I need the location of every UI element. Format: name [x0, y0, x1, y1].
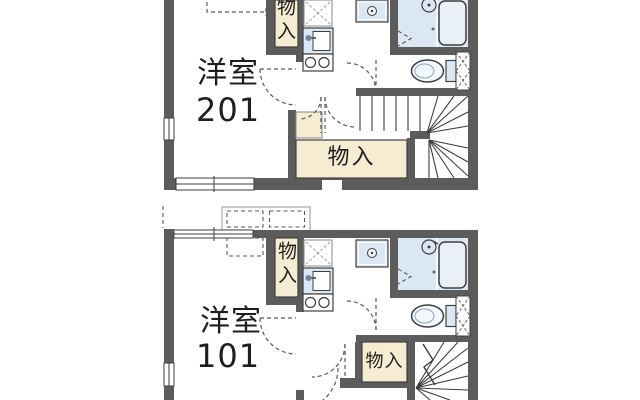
toilet-101: [412, 305, 457, 327]
roof-outline-dashed: [207, 2, 266, 16]
bathtub: [439, 242, 466, 288]
window-left-201: [164, 118, 174, 140]
shoe-cabinet-201: [296, 112, 322, 138]
toilet-tank: [446, 306, 456, 327]
door-swing-arc: [347, 301, 376, 330]
floor-plan: 洋室 201 物入 物入 洋室 101 物入 物入: [0, 0, 640, 400]
burner-icon: [306, 298, 316, 308]
closet-label-201: 物入: [274, 0, 296, 45]
room-number-201: 201: [196, 94, 260, 126]
burner-icon: [306, 58, 316, 68]
toilet-bowl: [412, 305, 444, 327]
door-swing-arc: [260, 318, 296, 354]
door-swing-arc: [325, 97, 355, 127]
window-left-101: [164, 363, 174, 386]
bathtub: [439, 1, 466, 45]
floor-plan-drawing: [0, 0, 640, 400]
room-label-201: 洋室: [197, 59, 259, 89]
burner-icon: [319, 58, 329, 68]
bathroom-101: [398, 238, 468, 290]
closet-label-101: 物入: [275, 241, 297, 289]
wall-opening: [322, 180, 342, 190]
burner-icon: [319, 298, 329, 308]
kitchen-201: [303, 0, 333, 71]
drain-icon: [433, 271, 436, 274]
washing-machine-pan-101: [356, 240, 388, 267]
door-swing-arc: [347, 63, 376, 92]
door-swing-arc: [312, 344, 345, 377]
faucet-icon: [306, 35, 312, 41]
toilet-tank: [446, 61, 456, 82]
pipe-space-hatch-201: [456, 52, 470, 90]
storage-label-201: 物入: [296, 147, 407, 169]
toilet-201: [412, 60, 457, 82]
sink-basin: [313, 32, 330, 51]
washing-machine-pan-201: [356, 0, 388, 22]
pipe-space-hatch-101: [456, 296, 470, 336]
drain-icon: [432, 28, 435, 31]
storage-label-101: 物入: [362, 353, 407, 371]
faucet-icon: [306, 275, 312, 281]
kitchen-101: [303, 240, 333, 311]
sink-basin: [313, 272, 330, 291]
room-label-101: 洋室: [200, 307, 262, 337]
toilet-bowl: [412, 60, 444, 82]
window-bottom-201: [176, 176, 254, 192]
door-swing-arc: [260, 69, 296, 105]
bathroom-201: [398, 0, 468, 47]
room-number-101: 101: [196, 340, 260, 372]
staircase-101: [416, 342, 468, 400]
